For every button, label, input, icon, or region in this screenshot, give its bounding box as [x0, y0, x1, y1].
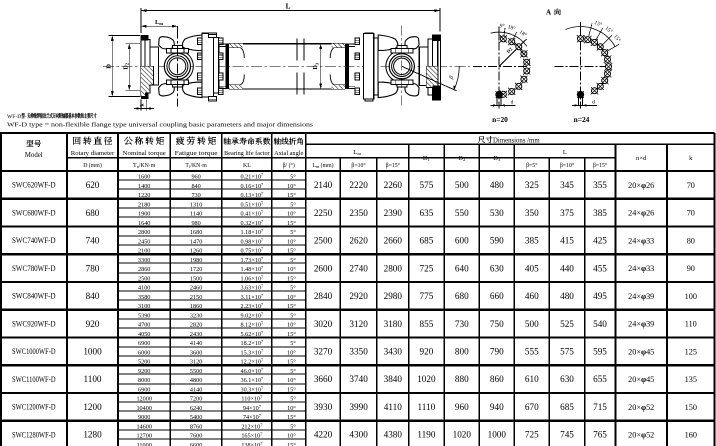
svg-text:780: 780 — [86, 263, 100, 273]
svg-text:3660: 3660 — [314, 374, 333, 384]
svg-text:660: 660 — [490, 291, 504, 301]
svg-text:SWC1200WF-D: SWC1200WF-D — [12, 403, 56, 412]
svg-text:2180: 2180 — [138, 201, 150, 208]
svg-text:β=5°: β=5° — [526, 162, 538, 169]
svg-text:4140: 4140 — [190, 386, 202, 393]
svg-text:595: 595 — [593, 347, 607, 357]
svg-text:12.2×107: 12.2×107 — [241, 358, 265, 366]
svg-text:2620: 2620 — [349, 236, 368, 246]
svg-text:80: 80 — [687, 236, 695, 245]
svg-text:2840: 2840 — [314, 291, 333, 301]
svg-text:540: 540 — [593, 319, 607, 329]
svg-text:725: 725 — [420, 263, 434, 273]
svg-text:β=15°: β=15° — [386, 162, 401, 169]
svg-text:15°: 15° — [287, 442, 296, 446]
svg-text:600: 600 — [455, 236, 469, 246]
svg-text:4800: 4800 — [190, 377, 202, 384]
svg-text:2980: 2980 — [384, 291, 403, 301]
svg-text:10°: 10° — [287, 211, 296, 218]
svg-text:n×d: n×d — [636, 155, 647, 162]
svg-text:4050: 4050 — [138, 331, 150, 338]
svg-text:125: 125 — [685, 347, 697, 356]
svg-text:3020: 3020 — [314, 319, 333, 329]
svg-text:840: 840 — [191, 183, 200, 190]
svg-text:4700: 4700 — [138, 322, 150, 329]
svg-text:1400: 1400 — [138, 183, 150, 190]
svg-text:1680: 1680 — [190, 229, 202, 236]
svg-text:575: 575 — [420, 180, 434, 190]
svg-text:D (mm): D (mm) — [83, 162, 102, 169]
svg-text:1020: 1020 — [453, 430, 472, 440]
svg-text:14600: 14600 — [136, 423, 151, 430]
svg-text:Axial angle: Axial angle — [274, 151, 304, 157]
svg-text:1860: 1860 — [190, 303, 202, 310]
svg-text:5.62×107: 5.62×107 — [241, 330, 265, 338]
svg-text:940: 940 — [490, 402, 504, 412]
svg-text:460: 460 — [525, 291, 539, 301]
svg-text:715: 715 — [593, 402, 607, 412]
svg-text:2220: 2220 — [349, 180, 368, 190]
svg-text:18.2×107: 18.2×107 — [241, 339, 265, 347]
svg-text:2860: 2860 — [138, 266, 150, 273]
svg-text:SWC840WF-D: SWC840WF-D — [12, 292, 56, 301]
svg-text:790: 790 — [490, 347, 504, 357]
svg-text:8000: 8000 — [138, 377, 150, 384]
svg-text:0.21×107: 0.21×107 — [241, 173, 265, 181]
svg-text:9.02×107: 9.02×107 — [241, 311, 265, 319]
svg-text:3990: 3990 — [349, 402, 368, 412]
svg-text:880: 880 — [455, 374, 469, 384]
svg-text:110×107: 110×107 — [241, 395, 263, 403]
svg-text:2660: 2660 — [384, 236, 403, 246]
svg-text:n=20: n=20 — [492, 115, 508, 124]
svg-text:5°: 5° — [290, 423, 296, 430]
svg-text:150: 150 — [685, 403, 697, 412]
svg-text:n=24: n=24 — [574, 115, 590, 124]
svg-text:Lm: Lm — [155, 19, 163, 26]
svg-text:0.16×107: 0.16×107 — [241, 182, 265, 190]
svg-text:1470: 1470 — [190, 238, 202, 245]
svg-text:10°: 10° — [287, 238, 296, 245]
svg-text:4110: 4110 — [384, 402, 402, 412]
svg-text:685: 685 — [420, 236, 434, 246]
svg-text:2350: 2350 — [349, 208, 368, 218]
svg-text:3300: 3300 — [138, 257, 150, 264]
svg-text:20×φ26: 20×φ26 — [628, 181, 654, 190]
svg-text:2460: 2460 — [190, 285, 202, 292]
svg-text:680: 680 — [455, 291, 469, 301]
svg-text:9200: 9200 — [138, 368, 150, 375]
svg-text:30.3×107: 30.3×107 — [241, 385, 265, 393]
svg-text:1.73×107: 1.73×107 — [241, 256, 265, 264]
svg-text:5390: 5390 — [138, 312, 150, 319]
svg-text:1.48×107: 1.48×107 — [241, 265, 265, 273]
svg-text:1600: 1600 — [138, 174, 150, 181]
svg-text:2150: 2150 — [190, 294, 202, 301]
svg-text:2250: 2250 — [314, 208, 333, 218]
svg-text:3270: 3270 — [314, 347, 333, 357]
svg-text:5°: 5° — [290, 368, 296, 375]
svg-text:70: 70 — [687, 209, 695, 218]
svg-text:15°: 15° — [287, 248, 296, 255]
svg-text:5200: 5200 — [138, 359, 150, 366]
svg-text:15°: 15° — [287, 275, 296, 282]
svg-text:1140: 1140 — [190, 211, 202, 218]
svg-text:2450: 2450 — [138, 238, 150, 245]
svg-text:8.12×107: 8.12×107 — [241, 321, 265, 329]
svg-text:SWC740WF-D: SWC740WF-D — [12, 236, 56, 245]
svg-text:960: 960 — [191, 174, 200, 181]
svg-text:1020: 1020 — [417, 374, 436, 384]
svg-text:D3: D3 — [493, 155, 501, 162]
svg-text:745: 745 — [560, 430, 574, 440]
svg-text:15°: 15° — [287, 386, 296, 393]
svg-text:Rotary diameter: Rotary diameter — [71, 151, 115, 157]
svg-text:5400: 5400 — [190, 414, 202, 421]
svg-text:D: D — [106, 64, 113, 69]
svg-text:630: 630 — [560, 374, 574, 384]
svg-text:7200: 7200 — [190, 396, 202, 403]
svg-text:10°: 10° — [287, 322, 296, 329]
svg-text:0.13×107: 0.13×107 — [241, 191, 265, 199]
svg-text:10°: 10° — [287, 183, 296, 190]
svg-text:480: 480 — [490, 180, 504, 190]
svg-text:2800: 2800 — [138, 229, 150, 236]
svg-text:920: 920 — [420, 347, 434, 357]
svg-text:1500: 1500 — [190, 275, 202, 282]
svg-text:2500: 2500 — [314, 236, 333, 246]
svg-text:L: L — [286, 3, 291, 11]
svg-text:Model: Model — [25, 152, 43, 159]
svg-text:Fatigue torque: Fatigue torque — [175, 151, 219, 157]
svg-text:1260: 1260 — [190, 248, 202, 255]
svg-text:0.32×107: 0.32×107 — [241, 219, 265, 227]
svg-text:3120: 3120 — [190, 359, 202, 366]
svg-text:455: 455 — [593, 263, 607, 273]
svg-text:775: 775 — [420, 291, 434, 301]
svg-text:90: 90 — [687, 264, 695, 273]
svg-text:440: 440 — [560, 263, 574, 273]
svg-text:5°: 5° — [290, 229, 296, 236]
svg-text:730: 730 — [191, 192, 200, 199]
svg-text:860: 860 — [490, 374, 504, 384]
svg-text:350: 350 — [525, 208, 539, 218]
svg-text:630: 630 — [490, 263, 504, 273]
svg-text:575: 575 — [560, 347, 574, 357]
svg-text:β=15°: β=15° — [593, 162, 608, 169]
svg-text:2430: 2430 — [190, 331, 202, 338]
svg-text:385: 385 — [593, 208, 607, 218]
svg-text:1640: 1640 — [138, 220, 150, 227]
svg-text:135: 135 — [685, 375, 697, 384]
svg-text:7600: 7600 — [190, 433, 202, 440]
svg-text:1720: 1720 — [190, 266, 202, 273]
svg-text:24×φ33: 24×φ33 — [628, 236, 654, 245]
svg-text:800: 800 — [455, 347, 469, 357]
svg-text:SWC920WF-D: SWC920WF-D — [12, 319, 56, 328]
svg-text:15.3×107: 15.3×107 — [241, 348, 265, 356]
svg-text:β=10°: β=10° — [351, 162, 366, 169]
svg-text:480: 480 — [560, 291, 574, 301]
svg-text:415: 415 — [560, 236, 574, 246]
svg-text:10°: 10° — [287, 433, 296, 440]
svg-text:9000: 9000 — [138, 414, 150, 421]
svg-text:212×107: 212×107 — [241, 422, 263, 430]
svg-text:1100: 1100 — [83, 374, 101, 384]
svg-text:500: 500 — [455, 180, 469, 190]
svg-text:2820: 2820 — [190, 322, 202, 329]
svg-text:5°: 5° — [290, 312, 296, 319]
svg-text:6600: 6600 — [190, 442, 202, 446]
svg-text:110: 110 — [685, 320, 697, 329]
svg-text:6900: 6900 — [138, 340, 150, 347]
svg-text:920: 920 — [86, 319, 100, 329]
svg-text:1000: 1000 — [488, 430, 507, 440]
svg-text:10°: 10° — [287, 405, 296, 412]
svg-text:5°: 5° — [290, 257, 296, 264]
svg-text:Dimensions /mm: Dimensions /mm — [493, 137, 540, 144]
svg-text:Tf/KN·m: Tf/KN·m — [185, 163, 207, 169]
svg-text:640: 640 — [455, 263, 469, 273]
svg-text:670: 670 — [525, 402, 539, 412]
svg-text:A: A — [546, 9, 551, 17]
svg-text:3230: 3230 — [190, 312, 202, 319]
svg-text:1110: 1110 — [418, 402, 436, 412]
svg-text:385: 385 — [525, 236, 539, 246]
svg-text:10400: 10400 — [136, 405, 151, 412]
svg-text:1.06×107: 1.06×107 — [241, 274, 265, 282]
svg-text:325: 325 — [525, 180, 539, 190]
svg-text:d: d — [592, 99, 595, 105]
svg-text:2500: 2500 — [138, 275, 150, 282]
svg-text:Lm (mm): Lm (mm) — [312, 162, 333, 169]
svg-text:3600: 3600 — [190, 349, 202, 356]
svg-text:765: 765 — [593, 430, 607, 440]
svg-text:15°: 15° — [287, 359, 296, 366]
svg-text:10°: 10° — [287, 294, 296, 301]
svg-text:590: 590 — [490, 236, 504, 246]
svg-text:740: 740 — [86, 236, 100, 246]
svg-text:46.0×107: 46.0×107 — [241, 367, 265, 375]
svg-text:SWC780WF-D: SWC780WF-D — [12, 264, 56, 273]
svg-text:620: 620 — [86, 180, 100, 190]
svg-text:2100: 2100 — [138, 248, 150, 255]
svg-text:5°: 5° — [290, 174, 296, 181]
svg-text:6000: 6000 — [138, 349, 150, 356]
svg-text:2390: 2390 — [384, 208, 403, 218]
svg-text:1190: 1190 — [417, 430, 435, 440]
svg-text:635: 635 — [420, 208, 434, 218]
svg-text:3840: 3840 — [384, 374, 403, 384]
svg-text:D2: D2 — [458, 155, 466, 162]
svg-text:12700: 12700 — [136, 433, 151, 440]
svg-text:610: 610 — [525, 374, 539, 384]
svg-text:15°: 15° — [287, 331, 296, 338]
svg-text:680: 680 — [86, 208, 100, 218]
svg-text:2.23×107: 2.23×107 — [241, 302, 265, 310]
svg-text:3.63×107: 3.63×107 — [241, 284, 265, 292]
svg-text:5°: 5° — [290, 201, 296, 208]
svg-text:4300: 4300 — [349, 430, 368, 440]
svg-text:Tn/KN·m: Tn/KN·m — [133, 163, 156, 169]
svg-text:3350: 3350 — [349, 347, 368, 357]
svg-text:SWC1100WF-D: SWC1100WF-D — [12, 375, 56, 384]
svg-text:β/ (°): β/ (°) — [283, 162, 295, 169]
svg-text:840: 840 — [86, 291, 100, 301]
svg-text:0.75×107: 0.75×107 — [241, 247, 265, 255]
svg-text:1280: 1280 — [83, 430, 102, 440]
svg-text:1.18×107: 1.18×107 — [241, 228, 265, 236]
svg-text:12000: 12000 — [136, 396, 151, 403]
svg-text:10°: 10° — [287, 377, 296, 384]
svg-text:4140: 4140 — [190, 340, 202, 347]
svg-text:100: 100 — [685, 292, 697, 301]
svg-text:550: 550 — [455, 208, 469, 218]
svg-text:WF-D type = non-flexible flang: WF-D type = non-flexible flange type uni… — [7, 121, 314, 128]
svg-text:36.1×107: 36.1×107 — [241, 376, 265, 384]
svg-text:2800: 2800 — [384, 263, 403, 273]
svg-text:6240: 6240 — [190, 405, 202, 412]
svg-text:4380: 4380 — [384, 430, 403, 440]
svg-text:Lm: Lm — [353, 149, 361, 156]
svg-text:24×φ26: 24×φ26 — [628, 209, 654, 218]
svg-text:15°: 15° — [287, 303, 296, 310]
svg-text:725: 725 — [525, 430, 539, 440]
svg-text:Bearing life factor: Bearing life factor — [224, 150, 270, 157]
svg-text:SWC620WF-D: SWC620WF-D — [12, 181, 56, 190]
svg-text:20×φ52: 20×φ52 — [628, 403, 654, 412]
svg-text:2600: 2600 — [314, 263, 333, 273]
svg-text:6900: 6900 — [138, 386, 150, 393]
svg-text:0.51×107: 0.51×107 — [241, 200, 265, 208]
svg-text:555: 555 — [525, 347, 539, 357]
svg-text:655: 655 — [593, 374, 607, 384]
svg-text:20×φ45: 20×φ45 — [628, 375, 654, 384]
svg-text:500: 500 — [525, 319, 539, 329]
svg-text:KL: KL — [243, 163, 251, 169]
svg-text:3.11×107: 3.11×107 — [241, 293, 264, 301]
svg-text:3100: 3100 — [138, 303, 150, 310]
svg-text:960: 960 — [455, 402, 469, 412]
svg-text:375: 375 — [560, 208, 574, 218]
svg-text:138×107: 138×107 — [241, 441, 263, 446]
svg-text:Nominal torque: Nominal torque — [123, 151, 167, 157]
svg-text:β=10°: β=10° — [560, 162, 575, 169]
svg-text:0.41×107: 0.41×107 — [241, 210, 265, 218]
svg-text:405: 405 — [525, 263, 539, 273]
svg-text:165×107: 165×107 — [241, 432, 263, 440]
svg-text:1310: 1310 — [190, 201, 202, 208]
svg-text:4220: 4220 — [314, 430, 333, 440]
svg-text:D1: D1 — [423, 155, 431, 162]
svg-text:3120: 3120 — [349, 319, 368, 329]
svg-text:5°: 5° — [290, 285, 296, 292]
svg-text:5500: 5500 — [190, 368, 202, 375]
svg-text:d: d — [511, 99, 514, 105]
svg-text:10°: 10° — [287, 266, 296, 273]
svg-text:425: 425 — [593, 236, 607, 246]
svg-text:WF-D: WF-D — [7, 114, 21, 120]
svg-text:1980: 1980 — [190, 257, 202, 264]
svg-text:355: 355 — [593, 180, 607, 190]
svg-text:345: 345 — [560, 180, 574, 190]
svg-text:3580: 3580 — [138, 294, 150, 301]
svg-text:0.98×107: 0.98×107 — [241, 237, 265, 245]
svg-text:5°: 5° — [290, 340, 296, 347]
svg-text:530: 530 — [490, 208, 504, 218]
svg-text:15°: 15° — [287, 192, 296, 199]
svg-text:1000: 1000 — [83, 347, 102, 357]
svg-text:8760: 8760 — [190, 423, 202, 430]
svg-text:1200: 1200 — [83, 402, 102, 412]
svg-text:3180: 3180 — [384, 319, 403, 329]
svg-text:525: 525 — [560, 319, 574, 329]
svg-text:10°: 10° — [287, 349, 296, 356]
svg-text:3930: 3930 — [314, 402, 333, 412]
svg-text:3430: 3430 — [384, 347, 403, 357]
svg-text:495: 495 — [593, 291, 607, 301]
svg-text:24×φ33: 24×φ33 — [628, 264, 654, 273]
svg-text:1900: 1900 — [138, 211, 150, 218]
svg-text:980: 980 — [191, 220, 200, 227]
svg-text:2920: 2920 — [349, 291, 368, 301]
svg-text:SWC1000WF-D: SWC1000WF-D — [12, 347, 56, 356]
svg-text:15°: 15° — [287, 414, 296, 421]
svg-text:685: 685 — [560, 402, 574, 412]
svg-text:160: 160 — [685, 431, 697, 440]
svg-text:2260: 2260 — [384, 180, 403, 190]
svg-text:24×φ39: 24×φ39 — [628, 320, 654, 329]
svg-text:SWC1280WF-D: SWC1280WF-D — [12, 430, 56, 439]
svg-text:2140: 2140 — [314, 180, 333, 190]
svg-text:SWC680WF-D: SWC680WF-D — [12, 208, 56, 217]
svg-text:3740: 3740 — [349, 374, 368, 384]
svg-text:20×φ52: 20×φ52 — [628, 431, 654, 440]
svg-text:1220: 1220 — [138, 192, 150, 199]
svg-text:9°: 9° — [499, 22, 504, 29]
svg-text:20×φ45: 20×φ45 — [628, 347, 654, 356]
svg-text:4100: 4100 — [138, 285, 150, 292]
svg-text:-: - — [25, 114, 27, 120]
svg-text:24×φ39: 24×φ39 — [628, 292, 654, 301]
svg-text:5°: 5° — [290, 396, 296, 403]
svg-text:855: 855 — [420, 319, 434, 329]
svg-text:11000: 11000 — [137, 442, 152, 446]
svg-text:750: 750 — [490, 319, 504, 329]
svg-text:70: 70 — [687, 181, 695, 190]
svg-text:2740: 2740 — [349, 263, 368, 273]
svg-text:15°: 15° — [287, 220, 296, 227]
svg-text:L: L — [563, 149, 567, 156]
svg-text:730: 730 — [455, 319, 469, 329]
